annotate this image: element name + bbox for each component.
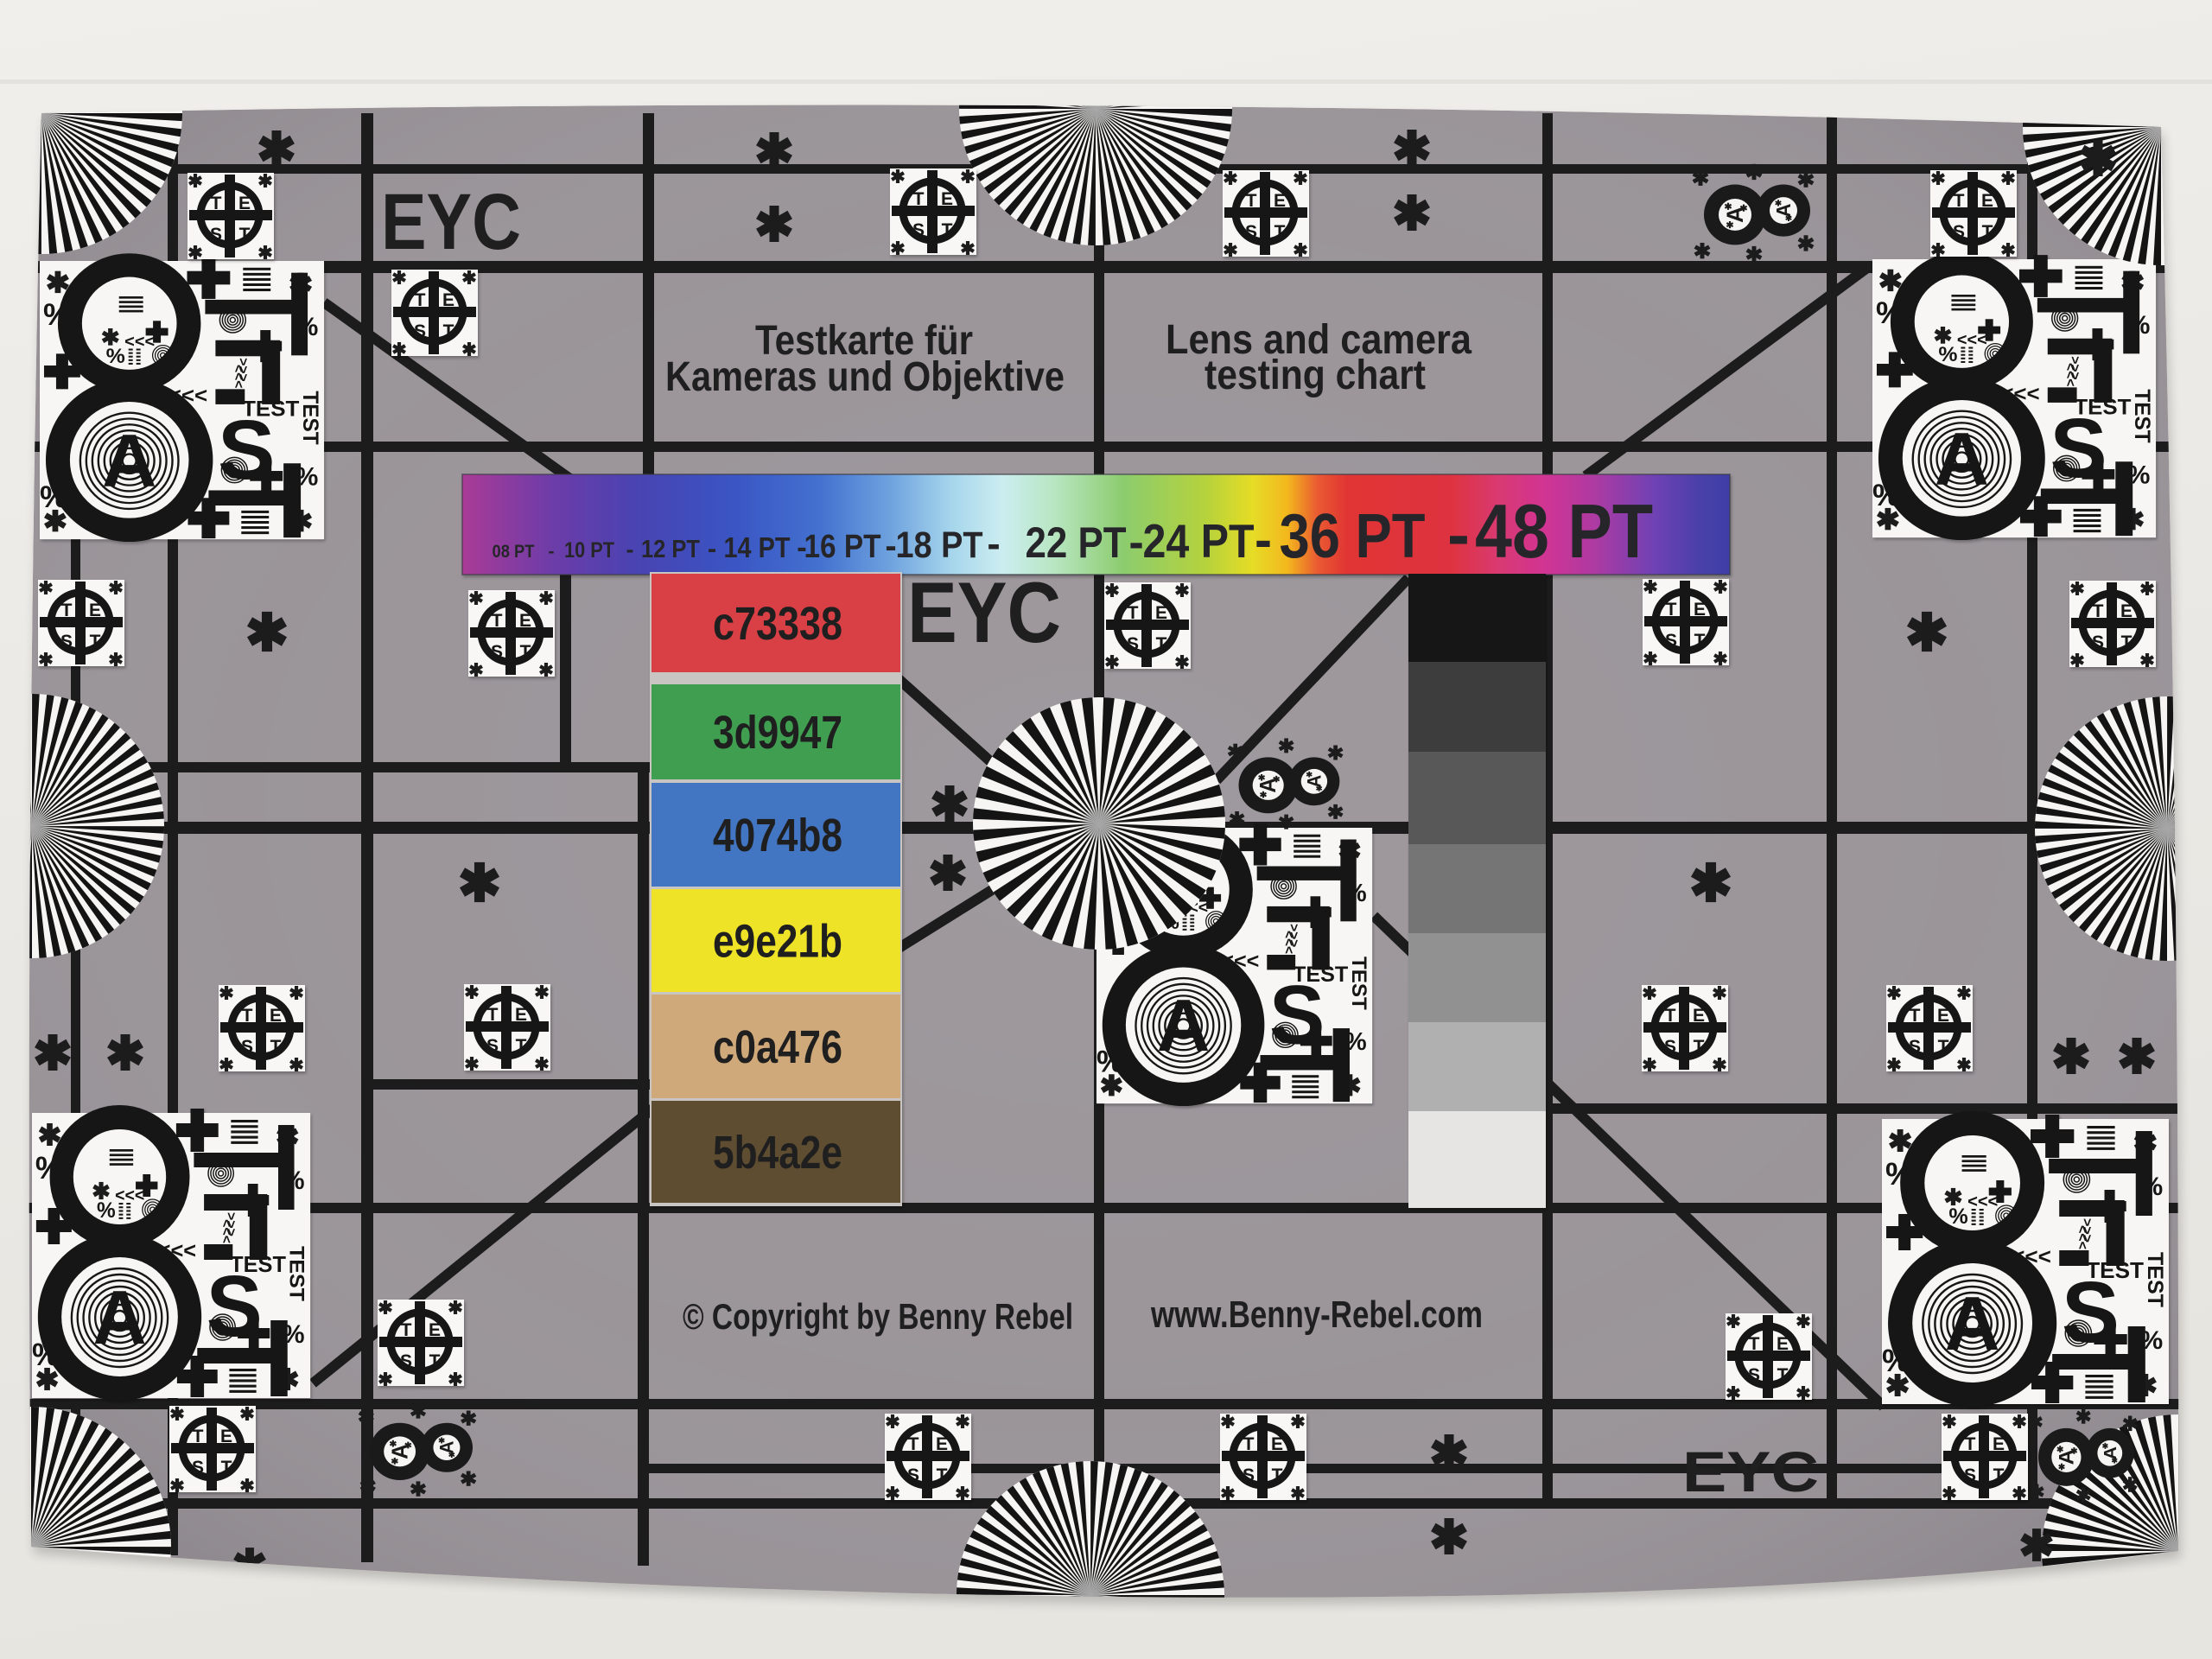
svg-text:3d9947: 3d9947 [713, 707, 842, 759]
svg-text:5b4a2e: 5b4a2e [713, 1127, 842, 1179]
svg-text:-: - [1128, 518, 1143, 568]
svg-text:© Copyright by Benny Rebel: © Copyright by Benny Rebel [683, 1296, 1073, 1337]
svg-text:-: - [708, 533, 716, 563]
svg-text:EYC: EYC [381, 178, 521, 266]
svg-text:www.Benny-Rebel.com: www.Benny-Rebel.com [1150, 1294, 1483, 1336]
svg-text:-: - [1255, 511, 1272, 569]
svg-text:testing chart: testing chart [1205, 353, 1426, 398]
svg-text:-: - [987, 521, 1000, 566]
svg-text:-: - [626, 537, 634, 563]
svg-text:48 PT: 48 PT [1475, 488, 1653, 574]
svg-text:36 PT: 36 PT [1280, 502, 1426, 571]
svg-text:c0a476: c0a476 [713, 1021, 842, 1073]
svg-text:4074b8: 4074b8 [713, 810, 842, 861]
svg-text:c73338: c73338 [713, 598, 842, 650]
svg-text:EYC: EYC [1682, 1440, 1819, 1503]
svg-text:Kameras und Objektive: Kameras und Objektive [665, 354, 1065, 400]
svg-text:e9e21b: e9e21b [713, 916, 842, 968]
svg-text:14 PT: 14 PT [724, 531, 791, 563]
svg-text:-: - [1447, 496, 1470, 572]
svg-text:-: - [549, 542, 555, 562]
svg-text:24 PT: 24 PT [1143, 514, 1255, 568]
svg-text:16 PT: 16 PT [804, 529, 881, 565]
svg-text:12 PT: 12 PT [641, 536, 700, 563]
svg-text:18 PT: 18 PT [896, 524, 983, 566]
svg-text:10 PT: 10 PT [564, 538, 614, 563]
svg-text:08 PT: 08 PT [493, 542, 535, 562]
svg-text:EYC: EYC [907, 564, 1061, 660]
svg-text:22 PT: 22 PT [1026, 518, 1127, 567]
